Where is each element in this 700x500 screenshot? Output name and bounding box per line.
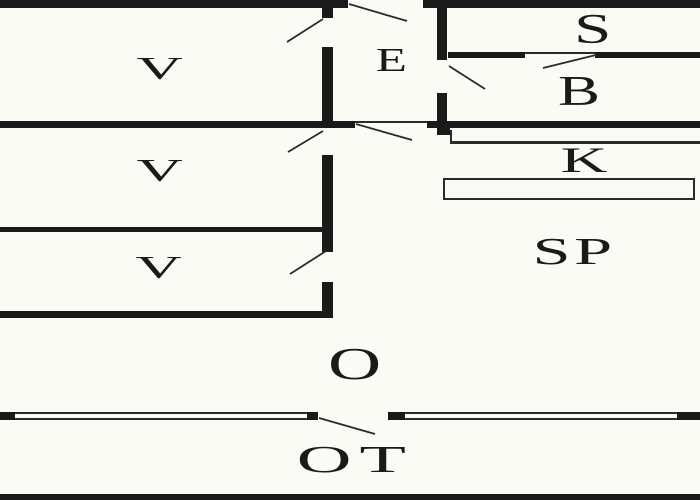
door-swing-e-b [449, 66, 485, 89]
door-swing-terrace [319, 418, 375, 434]
door-swing-v1 [287, 19, 323, 42]
door-swing-v3 [290, 251, 326, 274]
floor-plan: V V V E S B K SP O OT [0, 0, 700, 500]
door-swing-layer [0, 0, 700, 500]
door-swing-s-b [543, 55, 596, 68]
door-swing-entry-opening [356, 124, 412, 140]
door-swing-entrance [349, 4, 407, 21]
door-swing-v2 [288, 131, 323, 152]
